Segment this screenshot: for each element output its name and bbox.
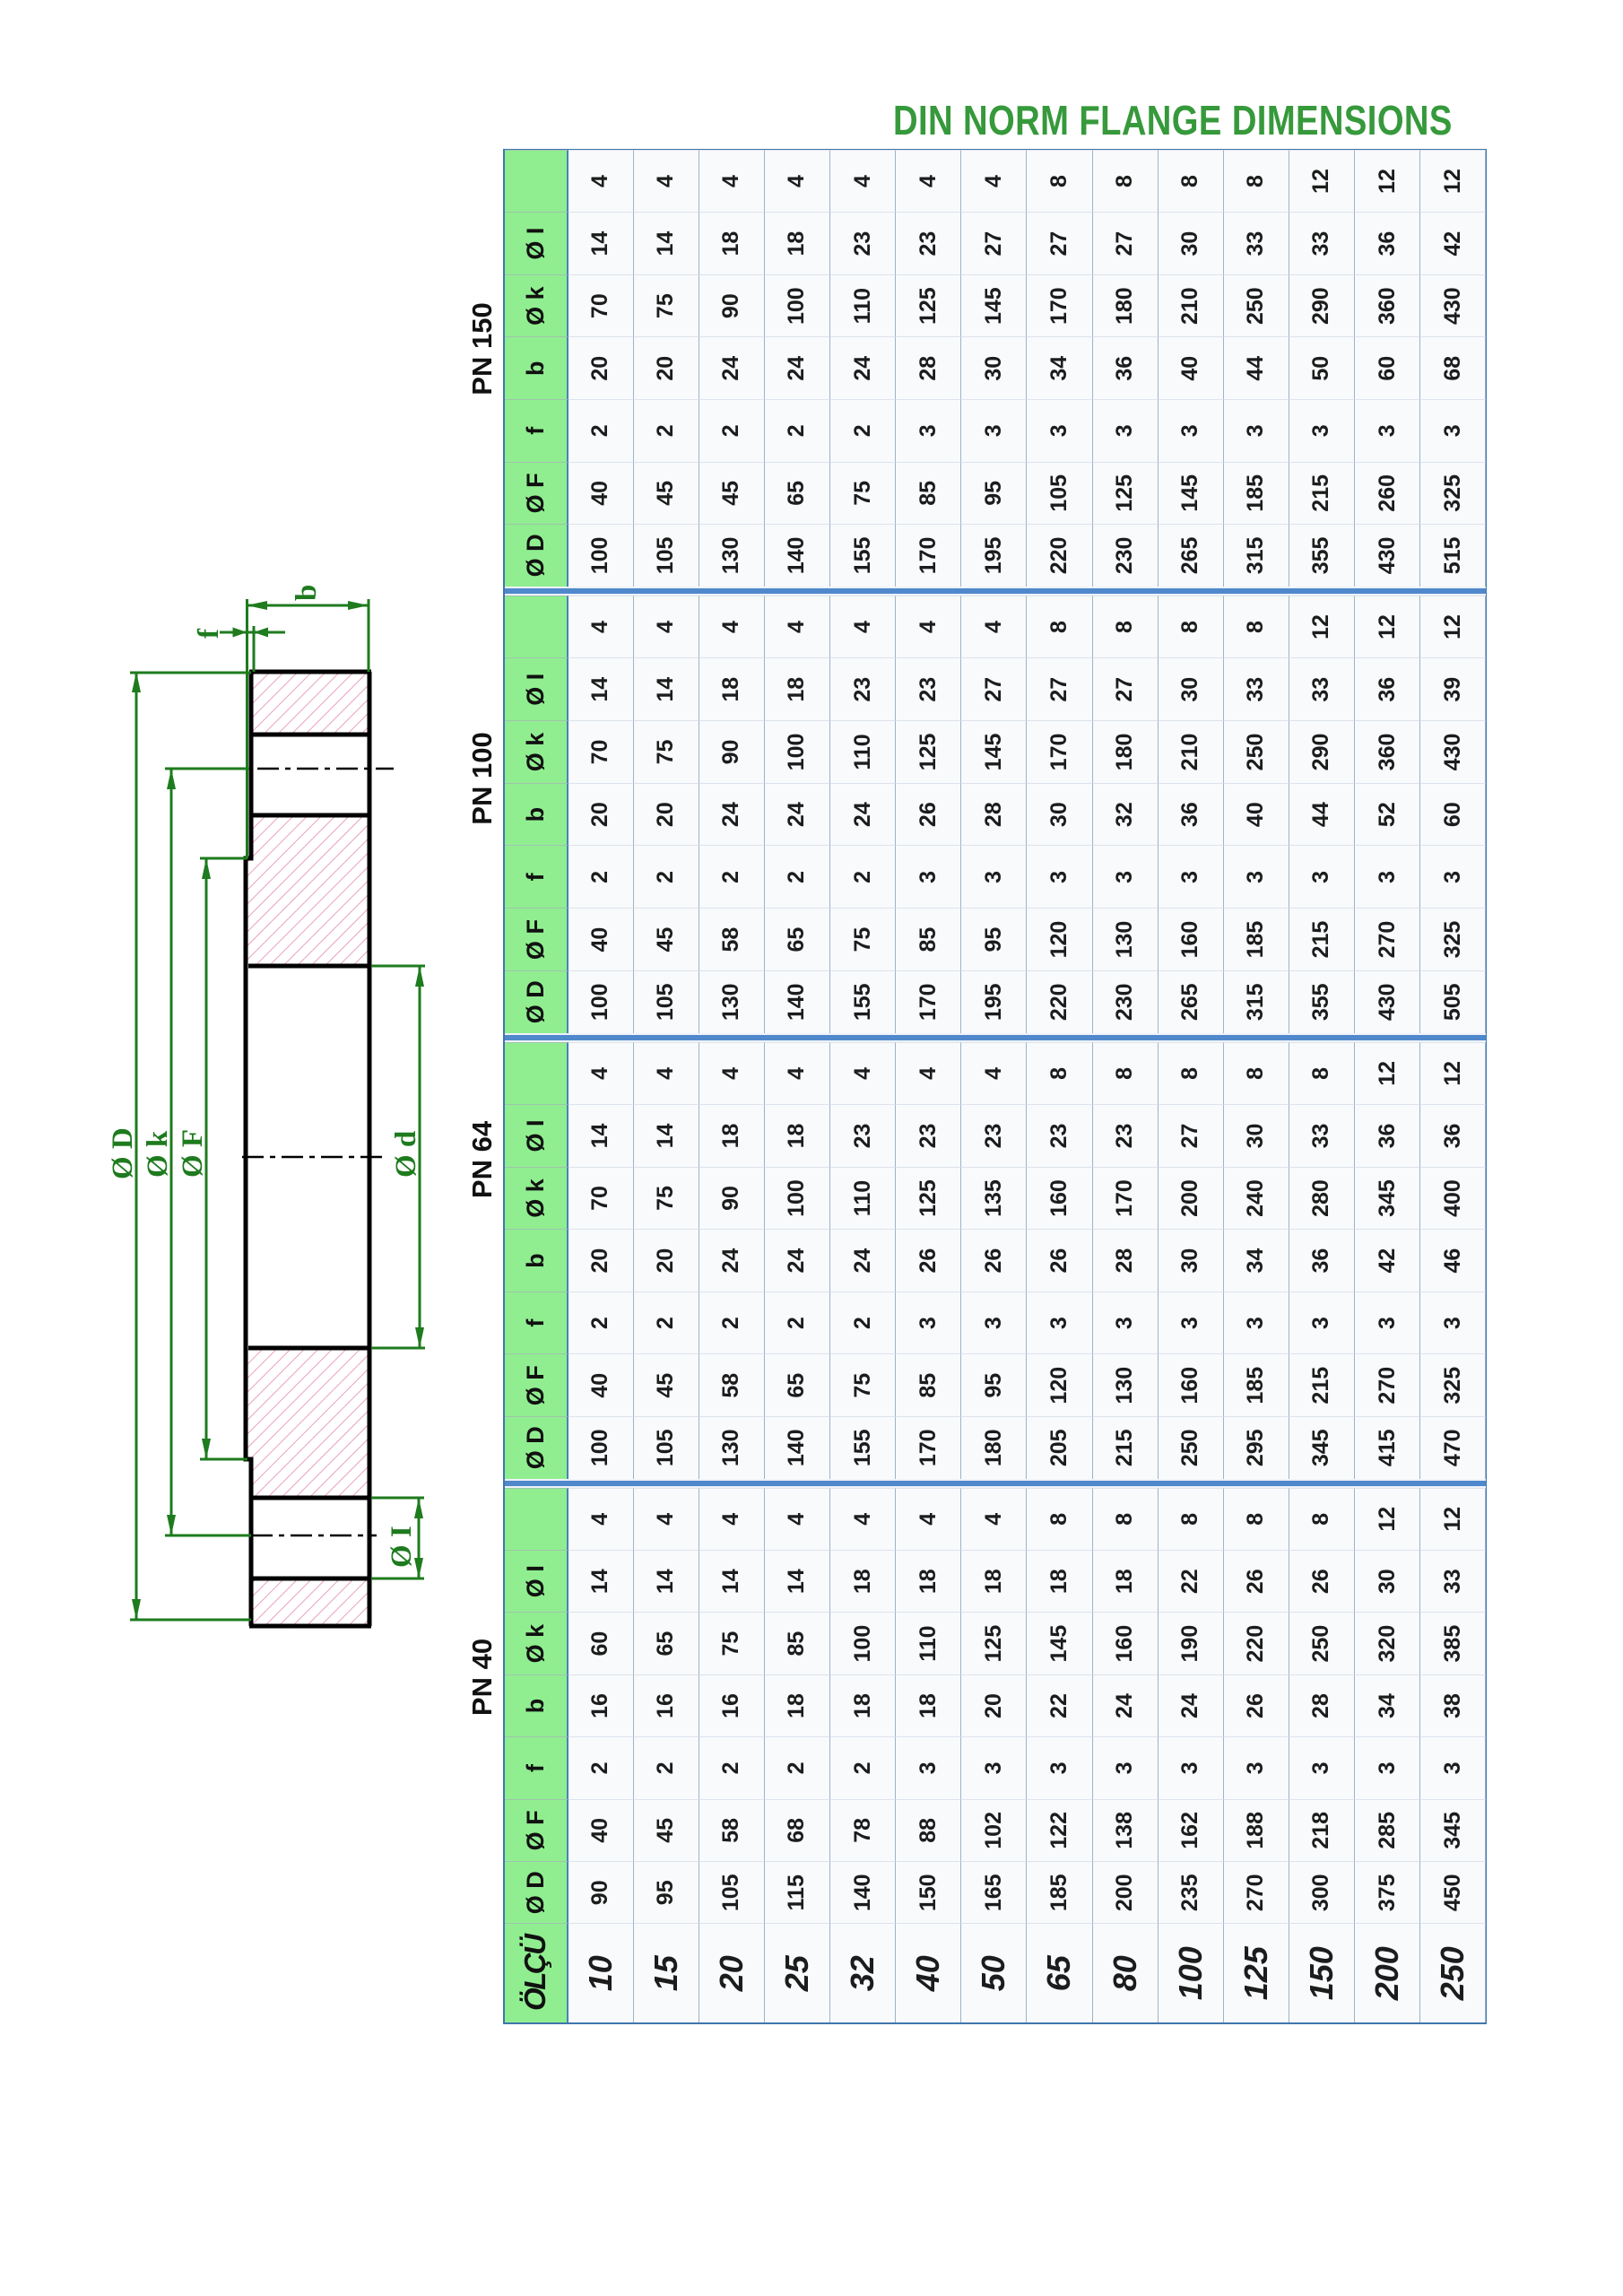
svg-text:Ø k: Ø k xyxy=(142,1130,174,1178)
svg-text:Ø F: Ø F xyxy=(177,1129,209,1178)
svg-text:f: f xyxy=(193,628,225,639)
svg-text:Ø D: Ø D xyxy=(107,1127,139,1179)
svg-text:Ø I: Ø I xyxy=(386,1526,418,1568)
svg-text:Ø d: Ø d xyxy=(390,1131,422,1178)
svg-text:b: b xyxy=(291,585,323,601)
